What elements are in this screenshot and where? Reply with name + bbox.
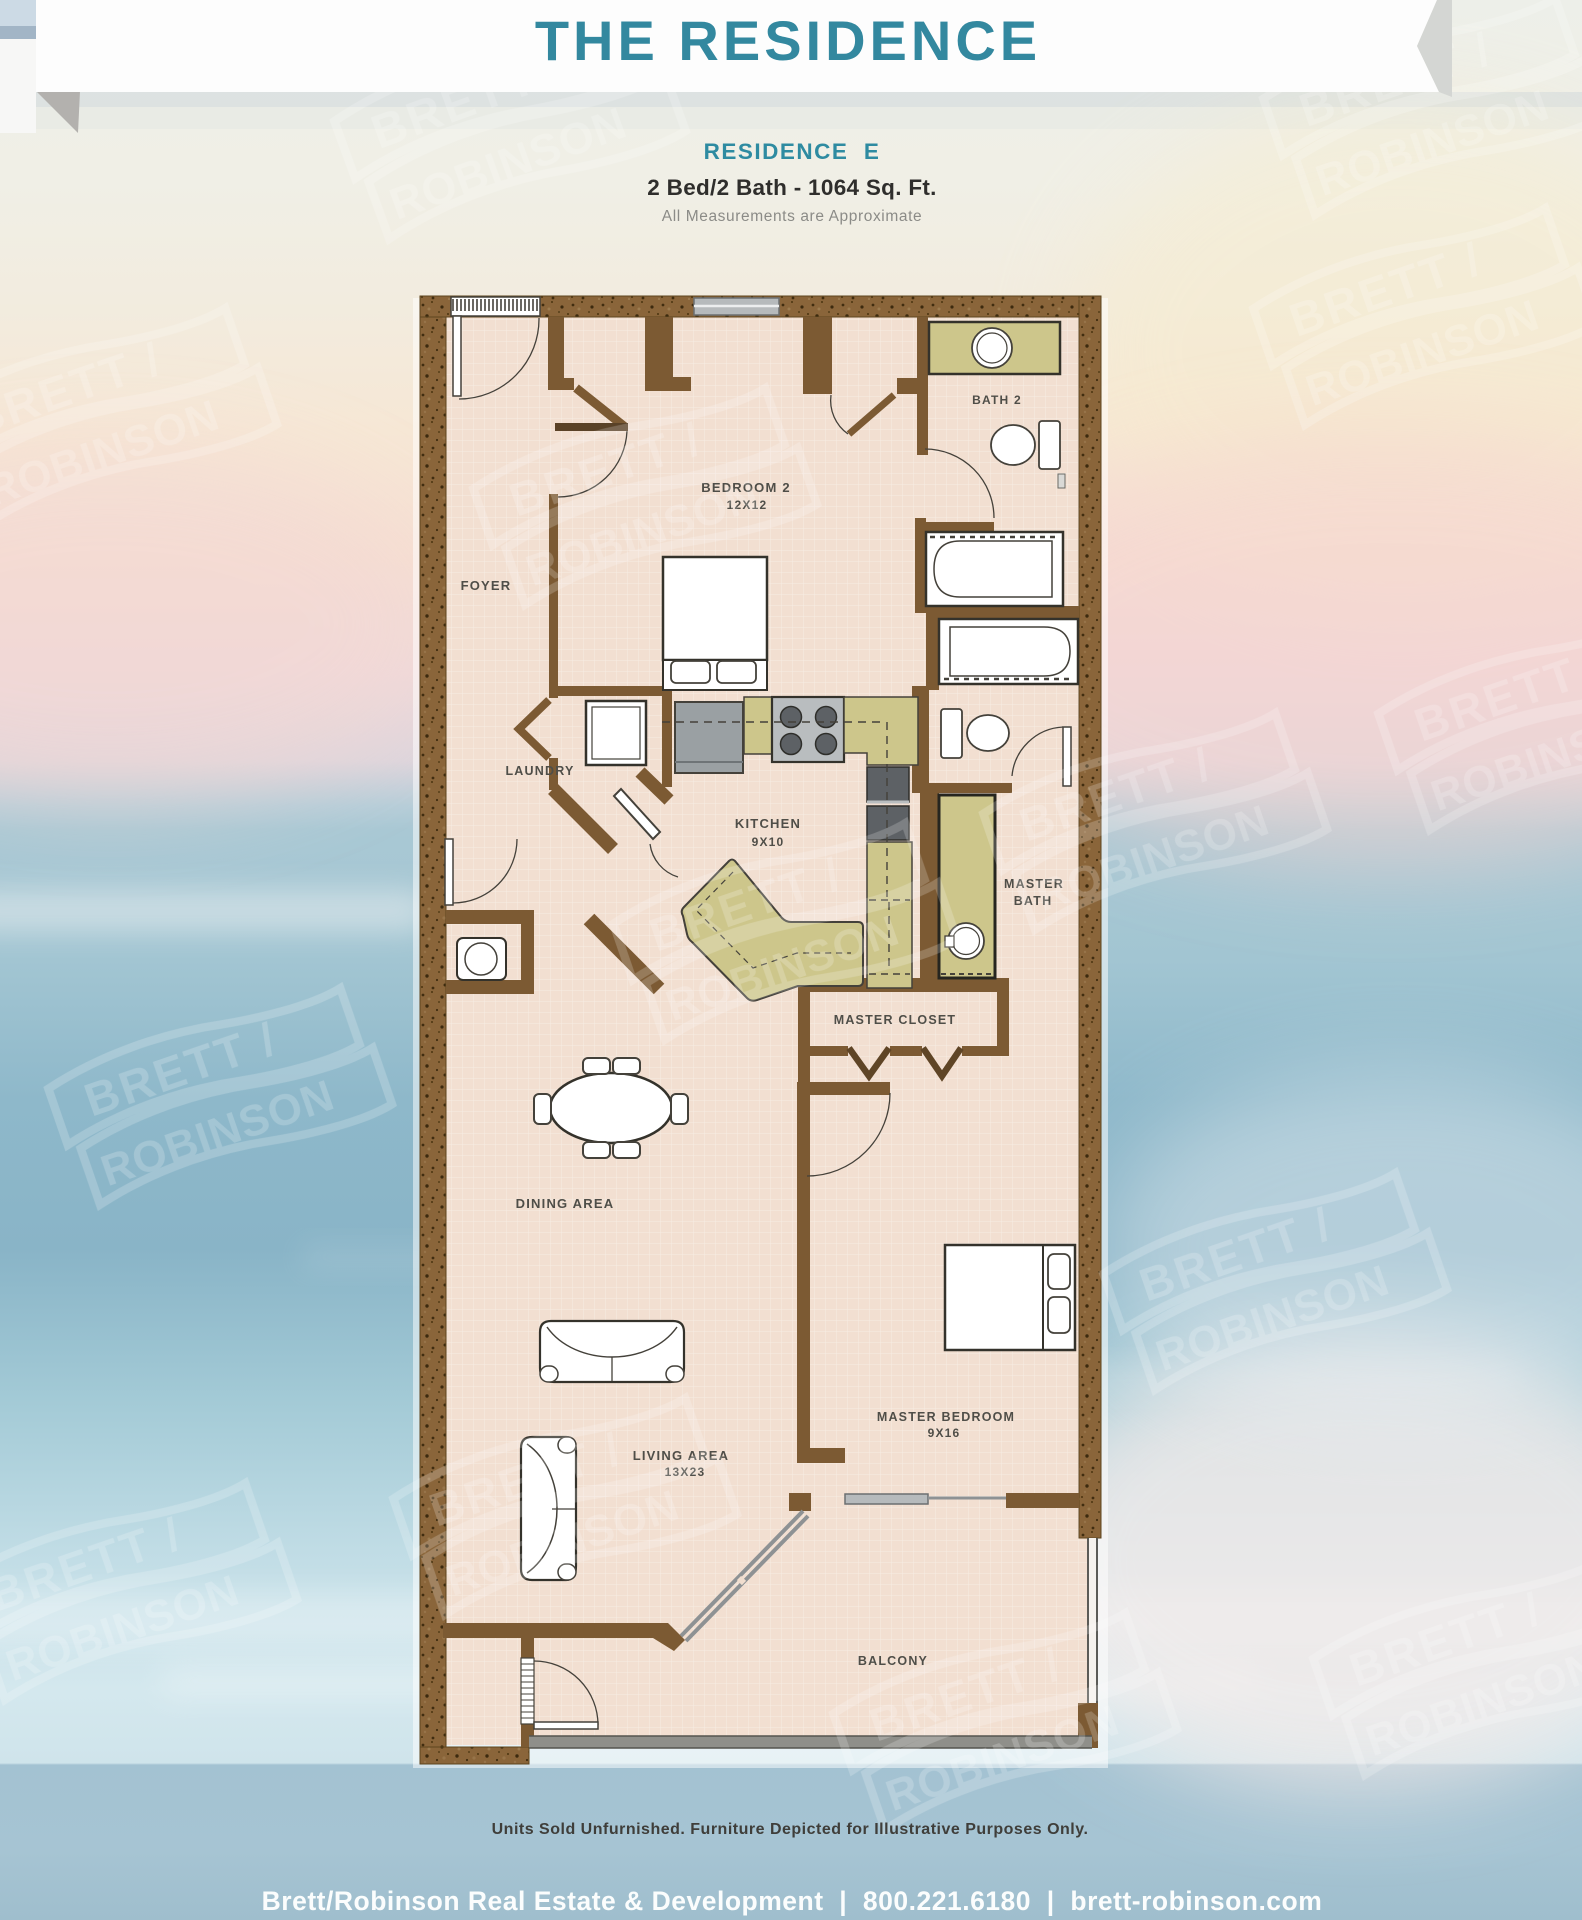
svg-text:2 Bed/2 Bath - 1064 Sq. Ft.: 2 Bed/2 Bath - 1064 Sq. Ft. — [647, 175, 936, 200]
svg-text:9X16: 9X16 — [928, 1426, 961, 1440]
svg-text:FOYER: FOYER — [461, 578, 512, 593]
svg-text:MASTER CLOSET: MASTER CLOSET — [834, 1013, 957, 1027]
svg-text:DINING AREA: DINING AREA — [516, 1196, 615, 1211]
svg-text:RESIDENCE E: RESIDENCE E — [704, 139, 881, 164]
svg-text:Units Sold Unfurnished. Furnit: Units Sold Unfurnished. Furniture Depict… — [492, 1821, 1089, 1838]
svg-text:All Measurements are Approxima: All Measurements are Approximate — [662, 208, 922, 225]
svg-text:MASTER BEDROOM: MASTER BEDROOM — [877, 1410, 1015, 1424]
svg-text:LAUNDRY: LAUNDRY — [505, 764, 574, 778]
svg-text:9X10: 9X10 — [752, 835, 785, 849]
svg-text:Brett/Robinson Real Estate & D: Brett/Robinson Real Estate & Development… — [262, 1886, 1323, 1916]
svg-text:BATH 2: BATH 2 — [972, 393, 1022, 407]
svg-text:BALCONY: BALCONY — [858, 1654, 928, 1668]
svg-text:KITCHEN: KITCHEN — [735, 816, 801, 831]
svg-text:THE RESIDENCE: THE RESIDENCE — [535, 9, 1041, 72]
